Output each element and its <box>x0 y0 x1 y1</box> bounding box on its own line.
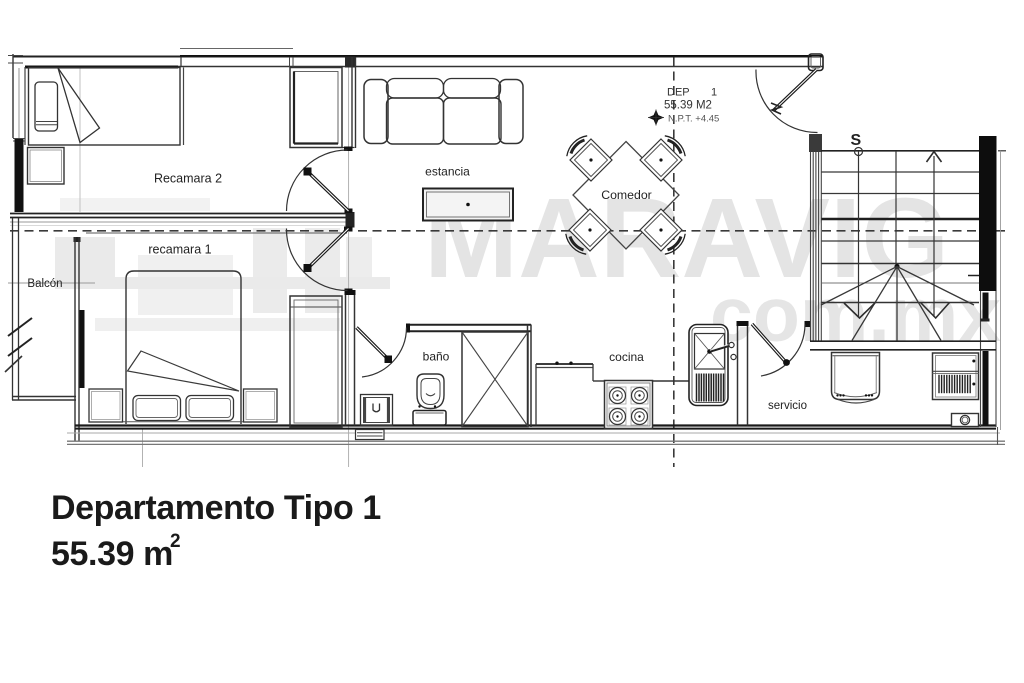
svg-text:DEP: DEP <box>667 87 690 99</box>
svg-text:estancia: estancia <box>425 165 470 179</box>
svg-text:2: 2 <box>170 531 181 552</box>
svg-text:N.P.T. +4.45: N.P.T. +4.45 <box>668 114 719 125</box>
svg-text:baño: baño <box>423 350 450 364</box>
svg-text:S: S <box>851 132 862 149</box>
svg-text:Recamara 2: Recamara 2 <box>154 172 222 186</box>
svg-text:55.39 m: 55.39 m <box>51 535 173 573</box>
svg-text:servicio: servicio <box>768 400 807 412</box>
svg-text:Departamento Tipo 1: Departamento Tipo 1 <box>51 489 381 527</box>
svg-text:1: 1 <box>711 87 717 99</box>
svg-text:cocina: cocina <box>609 350 644 364</box>
svg-text:Comedor: Comedor <box>601 188 652 202</box>
svg-text:55.39 M2: 55.39 M2 <box>664 100 712 112</box>
svg-text:recamara 1: recamara 1 <box>148 243 211 257</box>
svg-text:Balcón: Balcón <box>27 278 62 290</box>
